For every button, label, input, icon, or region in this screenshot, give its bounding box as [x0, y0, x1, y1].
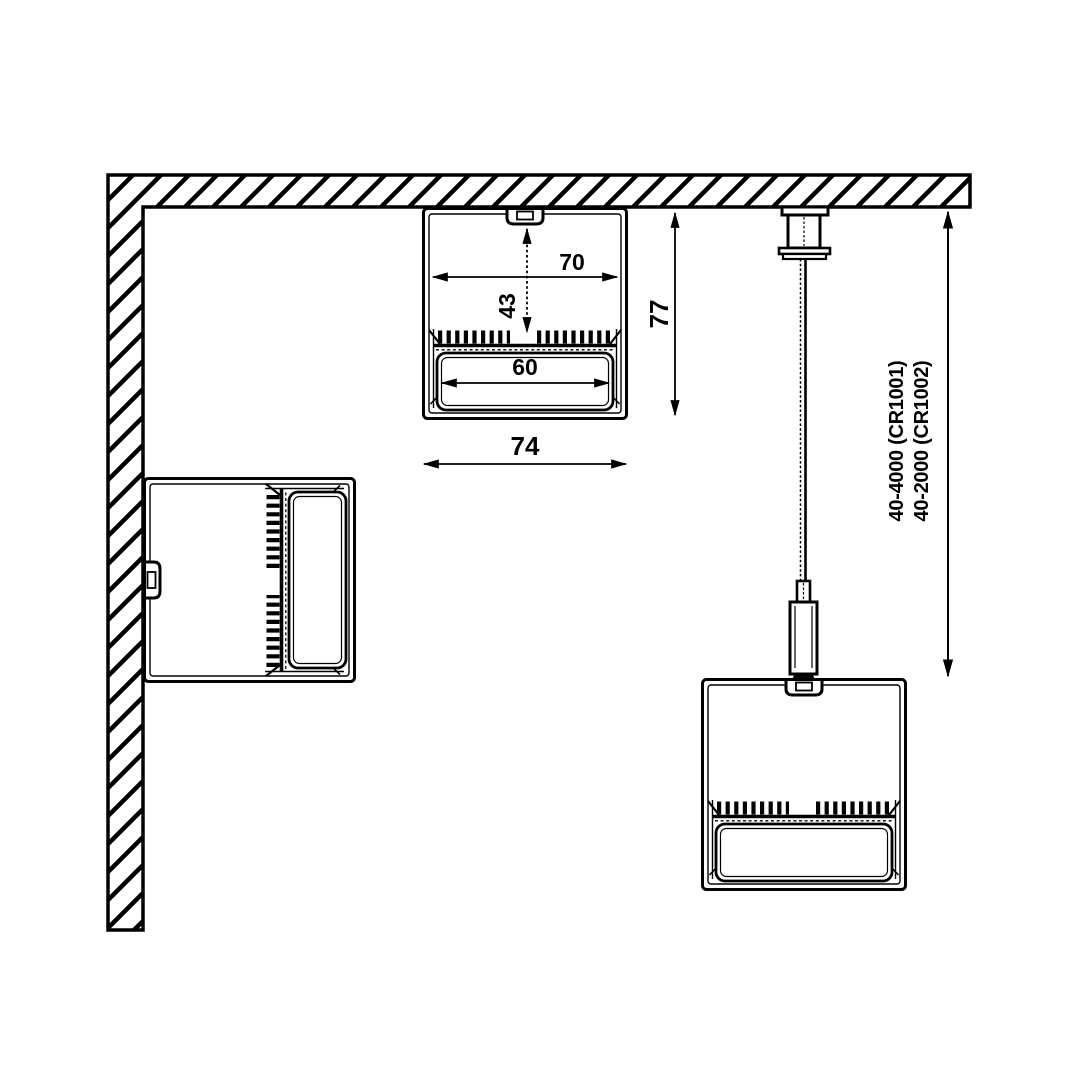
ceiling-canopy [779, 207, 830, 259]
cable-gripper [790, 581, 817, 682]
dim-overall-height: 77 [644, 213, 675, 415]
drawing-canvas: 70 43 60 74 77 40-4000 (CR1001) 40-2000 … [0, 0, 1080, 1080]
ceiling-mounted-profile [424, 209, 627, 419]
suspension-range-label-1: 40-4000 (CR1001) [886, 361, 908, 522]
suspension-range-label-2: 40-2000 (CR1002) [911, 361, 933, 522]
wall-mounted-profile [145, 479, 355, 682]
dim-overall-width-label: 74 [511, 431, 540, 461]
dim-suspension-range: 40-4000 (CR1001) 40-2000 (CR1002) [886, 212, 948, 676]
suspension-cable [801, 259, 806, 582]
dim-overall-width: 74 [424, 431, 626, 464]
suspended-profile [703, 680, 906, 890]
dim-inner-width-label: 70 [559, 249, 585, 275]
dim-diffuser-width-label: 60 [512, 354, 538, 380]
dim-depth-to-led-label: 43 [494, 293, 520, 319]
dim-overall-height-label: 77 [644, 300, 674, 329]
